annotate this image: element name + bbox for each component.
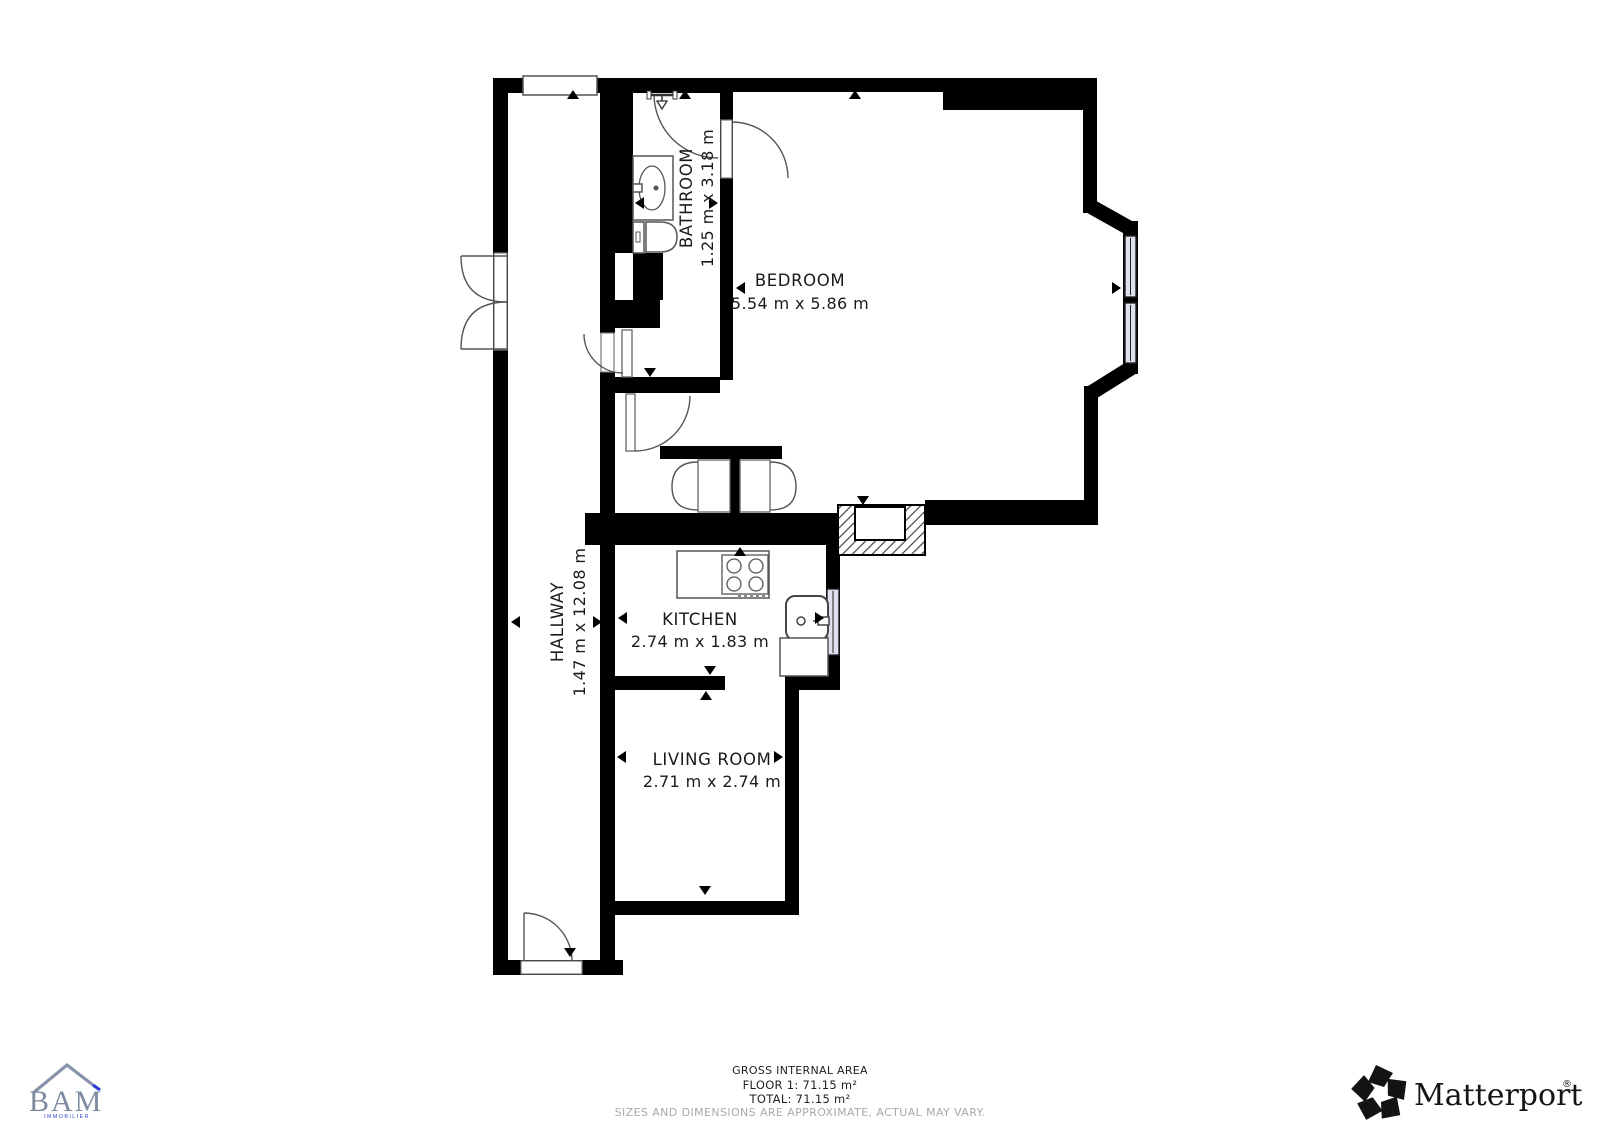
dimension-arrow — [774, 751, 783, 763]
wall-bedroom-bottom — [925, 500, 1098, 525]
chimney-inner-void — [855, 507, 905, 540]
dimension-arrow — [644, 368, 656, 377]
bathroom-dims: 1.25 m x 3.18 m — [698, 129, 717, 267]
dimension-arrow — [511, 616, 520, 628]
wall-hallway-right-c — [600, 393, 615, 960]
bathroom-fixtures — [633, 91, 677, 253]
wall-kitchen-right-connector — [785, 676, 840, 690]
kitchen-appliance — [780, 638, 828, 676]
wall-closet-bottom — [615, 377, 720, 393]
dimension-arrow — [736, 282, 745, 294]
kitchen-dims: 2.74 m x 1.83 m — [631, 632, 769, 651]
walls — [493, 78, 1138, 975]
stove-knob — [762, 595, 765, 598]
stove-knob — [756, 595, 759, 598]
door-opening-bedroom — [721, 120, 732, 178]
wall-living-bottom — [600, 901, 799, 915]
dimensions-disclaimer: SIZES AND DIMENSIONS ARE APPROXIMATE, AC… — [615, 1106, 986, 1119]
matterport-wordmark: Matterport — [1414, 1078, 1582, 1113]
dimension-arrow — [857, 496, 869, 505]
wall-double-door-post — [730, 459, 740, 513]
shower-cap-right — [673, 91, 677, 99]
wall-living-right — [785, 690, 799, 915]
wall-hallway-left — [493, 78, 508, 975]
wall-bedroom-right-upper — [1083, 92, 1097, 213]
double-door-swing-left-bottom — [672, 487, 698, 510]
dimension-arrow — [617, 751, 626, 763]
window-hallway-top — [523, 76, 597, 95]
toilet-icon — [633, 222, 677, 253]
dimension-arrow — [618, 612, 627, 624]
floor-area-line: FLOOR 1: 71.15 m² — [743, 1078, 858, 1092]
living-room-dims: 2.71 m x 2.74 m — [643, 772, 781, 791]
double-door-swing-left-top — [672, 462, 698, 487]
bam-logo: BAM IMMOBILIER — [29, 1065, 103, 1120]
stove-knob — [738, 595, 741, 598]
corridor-door-leaf — [626, 394, 635, 451]
door-opening-entrance — [521, 961, 582, 974]
wall-top-right-block — [943, 78, 1097, 110]
dimension-arrow — [704, 666, 716, 675]
closet-door-leaf — [622, 330, 632, 377]
shower-icon — [647, 91, 677, 109]
wall-hallway-right-a — [600, 253, 615, 333]
stove-knob — [750, 595, 753, 598]
sink-faucet — [633, 184, 642, 192]
footer: GROSS INTERNAL AREA FLOOR 1: 71.15 m² TO… — [615, 1064, 986, 1119]
floor-plan: BEDROOM 5.54 m x 5.86 m BATHROOM 1.25 m … — [0, 0, 1600, 1131]
registered-trademark-symbol: ® — [1562, 1079, 1572, 1090]
matterport-pinwheel-icon — [1349, 1065, 1412, 1125]
hallway-dims: 1.47 m x 12.08 m — [570, 548, 589, 697]
page: { "plan": { "rooms": { "bedroom": { "lab… — [0, 0, 1600, 1131]
hallway-label: HALLWAY — [548, 582, 567, 663]
stove-knob — [744, 595, 747, 598]
bedroom-dims: 5.54 m x 5.86 m — [731, 294, 869, 313]
wall-kitchen-top — [585, 513, 838, 545]
shower-cap-left — [647, 91, 651, 99]
bathroom-sink-icon — [633, 156, 673, 220]
bathroom-label: BATHROOM — [677, 148, 696, 248]
wall-hallway-bathroom — [600, 93, 633, 253]
double-door-swing-right-top — [770, 462, 796, 487]
matterport-icon-petal — [1352, 1092, 1385, 1124]
wall-kitchen-living-divider — [615, 676, 725, 690]
wall-double-door-top — [660, 446, 782, 459]
matterport-logo: Matterport ® — [1349, 1065, 1583, 1125]
dimension-arrow — [699, 886, 711, 895]
chimney-shaft — [838, 505, 925, 555]
living-room-label: LIVING ROOM — [653, 750, 772, 769]
dimension-arrow — [564, 948, 576, 957]
entrance-door-swing — [524, 913, 572, 961]
double-door-swing-right-bottom — [770, 487, 796, 510]
dimension-arrow — [1112, 282, 1121, 294]
wall-hallway-right-b — [600, 372, 615, 393]
wall-top-bedroom — [733, 78, 943, 92]
toilet-button — [636, 232, 640, 242]
door-opening-hallway-closet — [601, 333, 614, 372]
kitchen-label: KITCHEN — [662, 610, 738, 629]
double-door-leaf-left — [698, 460, 730, 512]
double-door-leaf-right — [740, 460, 770, 512]
total-area-line: TOTAL: 71.15 m² — [749, 1092, 851, 1106]
toilet-bowl — [646, 222, 677, 252]
bedroom-label: BEDROOM — [755, 271, 845, 290]
wall-bathroom-bottom — [633, 253, 663, 300]
gross-internal-area-title: GROSS INTERNAL AREA — [732, 1064, 868, 1077]
sink-drain — [654, 186, 659, 191]
dimension-arrow — [700, 691, 712, 700]
corridor-door-swing — [635, 396, 690, 451]
shower-head — [657, 101, 667, 109]
bam-subtitle: IMMOBILIER — [44, 1114, 90, 1120]
bedroom-door-swing — [732, 122, 788, 178]
